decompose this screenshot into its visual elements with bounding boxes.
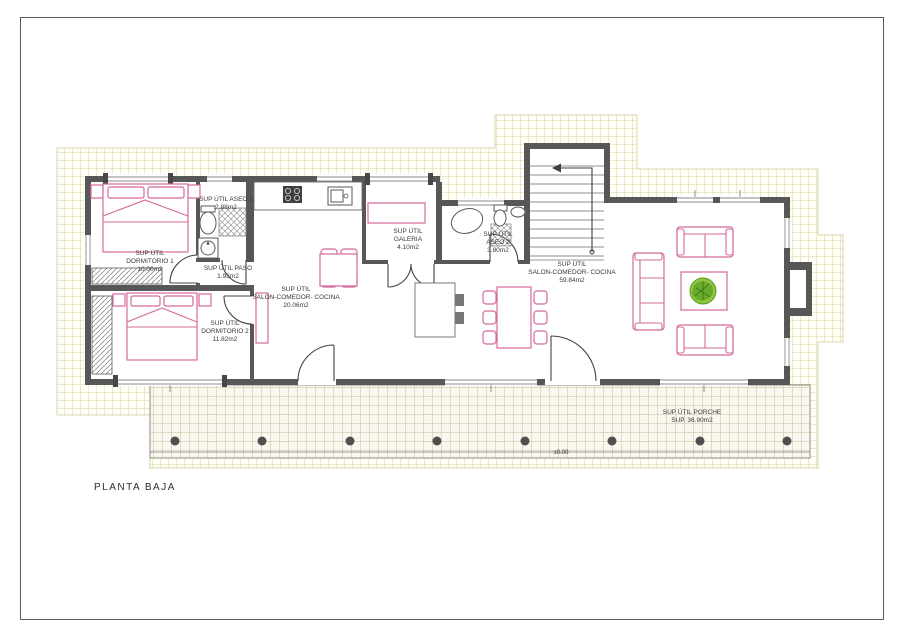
room-label-dormitorio-2: SUP ÚTILDORMITORIO 211.82m2 <box>201 320 249 344</box>
room-label-aseo-1: SUP ÚTIL ASEO 12.88m2 <box>199 196 253 212</box>
galeria-counter <box>368 203 425 223</box>
bed-dormitorio-2 <box>113 293 211 360</box>
sofa-bottom <box>677 325 733 355</box>
floor-plan-sheet: SUP ÚTILDORMITORIO 110.00m2 SUP ÚTIL ASE… <box>0 0 900 635</box>
stove <box>283 186 302 203</box>
plan-title: PLANTA BAJA <box>94 482 176 493</box>
dining-table-chairs <box>483 287 547 348</box>
room-label-paso: SUP ÚTIL PASO1.93m2 <box>204 265 252 281</box>
room-label-porche: SUP ÚTIL PORCHESUP. 36.90m2 <box>663 409 722 425</box>
sofa-top <box>677 227 733 257</box>
level-mark: ±0.00 <box>554 450 569 456</box>
room-label-dormitorio-1: SUP ÚTILDORMITORIO 110.00m2 <box>126 250 174 274</box>
sofa-left <box>633 253 664 330</box>
wardrobe-dorm2 <box>92 296 112 374</box>
floor-plan-drawing <box>0 0 900 635</box>
small-table-chairs <box>320 249 357 287</box>
room-label-salon-1: SUP ÚTILSALON-COMEDOR- COCINA20.06m2 <box>252 286 339 310</box>
room-label-salon-2: SUP ÚTILSALON-COMEDOR- COCINA59.84m2 <box>528 261 615 285</box>
kitchen-counter <box>254 182 362 210</box>
room-label-galeria: SUP ÚTILGALERIA4.10m2 <box>393 228 422 252</box>
coffee-table-plant <box>681 272 727 310</box>
room-label-aseo-2: SUP ÚTILASEO 23.80m2 <box>483 231 512 255</box>
bed-dormitorio-1 <box>91 184 200 252</box>
